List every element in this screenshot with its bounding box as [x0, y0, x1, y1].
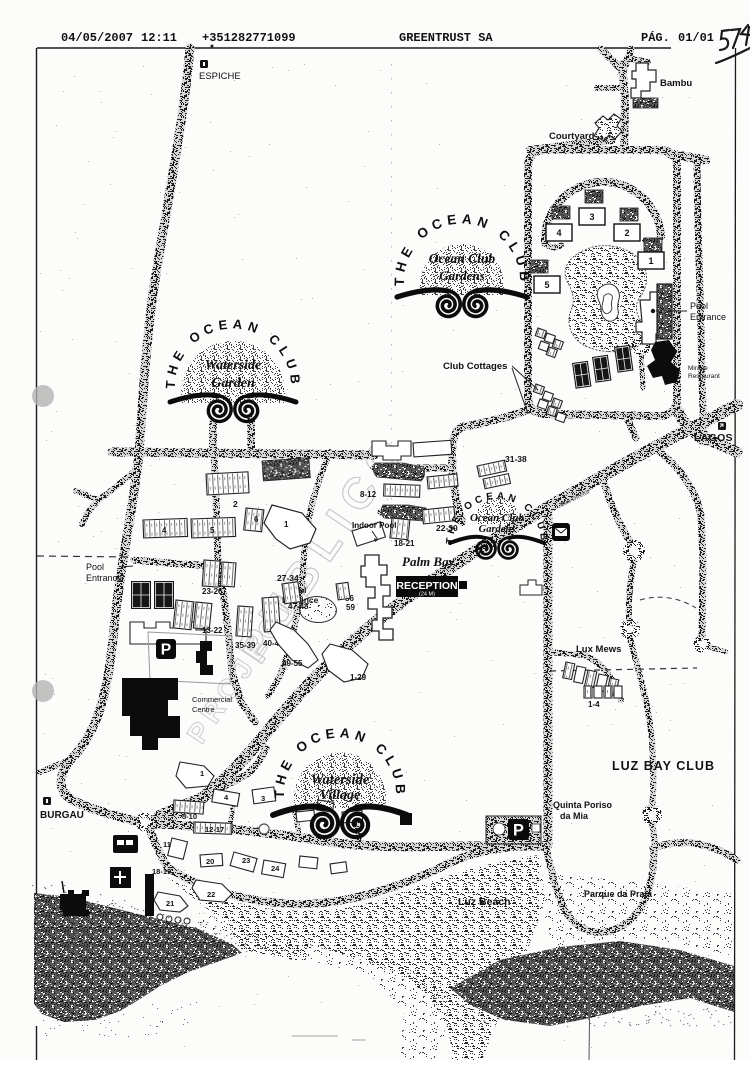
svg-text:59: 59: [346, 603, 355, 612]
svg-text:1: 1: [200, 769, 204, 778]
svg-text:Entrance: Entrance: [86, 573, 122, 583]
svg-text:Parque da Praia: Parque da Praia: [584, 889, 653, 899]
svg-text:P: P: [513, 821, 524, 839]
svg-text:8-12: 8-12: [360, 490, 377, 499]
svg-text:1: 1: [284, 520, 289, 529]
svg-text:+351282771099: +351282771099: [202, 31, 296, 45]
svg-text:1-29: 1-29: [350, 673, 367, 682]
svg-text:Pool: Pool: [86, 562, 104, 572]
svg-text:GREENTRUST SA: GREENTRUST SA: [399, 31, 493, 45]
svg-text:12-17: 12-17: [205, 825, 224, 834]
svg-text:BURGAU: BURGAU: [40, 810, 84, 821]
svg-text:31-38: 31-38: [505, 454, 527, 464]
svg-text:LAGOS: LAGOS: [694, 432, 733, 444]
svg-text:23-26: 23-26: [202, 587, 223, 596]
svg-text:18-21: 18-21: [394, 539, 415, 548]
svg-text:13-22: 13-22: [202, 626, 223, 635]
svg-text:Indoor Pool: Indoor Pool: [352, 521, 396, 530]
svg-text:01/01: 01/01: [678, 31, 714, 45]
svg-text:5: 5: [544, 280, 549, 290]
svg-text:Garden: Garden: [211, 376, 255, 391]
svg-text:12:11: 12:11: [141, 31, 177, 45]
svg-text:3: 3: [261, 794, 265, 803]
svg-text:PÁG.: PÁG.: [641, 30, 670, 45]
svg-text:1: 1: [648, 256, 653, 266]
svg-text:5-10: 5-10: [182, 812, 197, 821]
svg-text:4: 4: [162, 526, 167, 535]
svg-text:23: 23: [242, 856, 250, 865]
svg-text:27-34: 27-34: [277, 573, 299, 583]
svg-text:Centre: Centre: [192, 705, 215, 714]
svg-text:Bambu: Bambu: [660, 78, 692, 89]
svg-text:Entrance: Entrance: [690, 312, 726, 322]
svg-text:LUZ BAY CLUB: LUZ BAY CLUB: [612, 759, 715, 773]
svg-text:Restaurant: Restaurant: [688, 373, 720, 380]
svg-text:Commercial: Commercial: [192, 695, 232, 704]
svg-text:Club Cottages: Club Cottages: [443, 361, 507, 372]
svg-text:(24 M): (24 M): [419, 592, 435, 598]
svg-text:Pool: Pool: [690, 301, 708, 311]
svg-text:Waterside: Waterside: [311, 772, 370, 788]
svg-text:6: 6: [254, 515, 259, 524]
svg-text:Ocean Club: Ocean Club: [429, 251, 496, 266]
svg-text:11: 11: [163, 840, 171, 849]
svg-text:35-39: 35-39: [235, 641, 256, 650]
svg-text:20: 20: [206, 857, 214, 866]
svg-text:Courtyard: Courtyard: [549, 131, 595, 142]
svg-text:Quinta Poriso: Quinta Poriso: [553, 800, 613, 810]
svg-text:ESPICHE: ESPICHE: [199, 71, 241, 82]
svg-text:Luz Beach: Luz Beach: [458, 896, 511, 908]
svg-text:22: 22: [207, 890, 215, 899]
svg-text:Gardens: Gardens: [439, 268, 485, 283]
svg-text:1-4: 1-4: [588, 700, 600, 709]
svg-text:P: P: [161, 642, 171, 659]
svg-text:Mirage: Mirage: [688, 365, 708, 372]
svg-text:Gardens: Gardens: [479, 524, 516, 535]
svg-text:RECEPTION: RECEPTION: [396, 580, 457, 592]
svg-text:47-48: 47-48: [288, 602, 309, 611]
svg-text:2: 2: [624, 228, 629, 238]
svg-text:49-55: 49-55: [282, 659, 303, 668]
svg-text:Village: Village: [320, 788, 360, 803]
svg-text:04/05/2007: 04/05/2007: [61, 31, 133, 45]
svg-text:Palm Bay: Palm Bay: [402, 554, 455, 569]
svg-text:da Mia: da Mia: [560, 811, 589, 821]
svg-text:3: 3: [589, 212, 594, 222]
svg-text:2: 2: [233, 499, 238, 509]
svg-text:24: 24: [271, 864, 280, 873]
svg-text:Lux Mews: Lux Mews: [576, 644, 621, 655]
svg-text:Ocean Club: Ocean Club: [470, 512, 525, 524]
svg-text:Waterside: Waterside: [205, 358, 262, 373]
svg-text:21: 21: [166, 899, 174, 908]
svg-text:4: 4: [556, 228, 561, 238]
svg-text:18-19: 18-19: [152, 867, 171, 876]
svg-text:5: 5: [210, 526, 215, 535]
